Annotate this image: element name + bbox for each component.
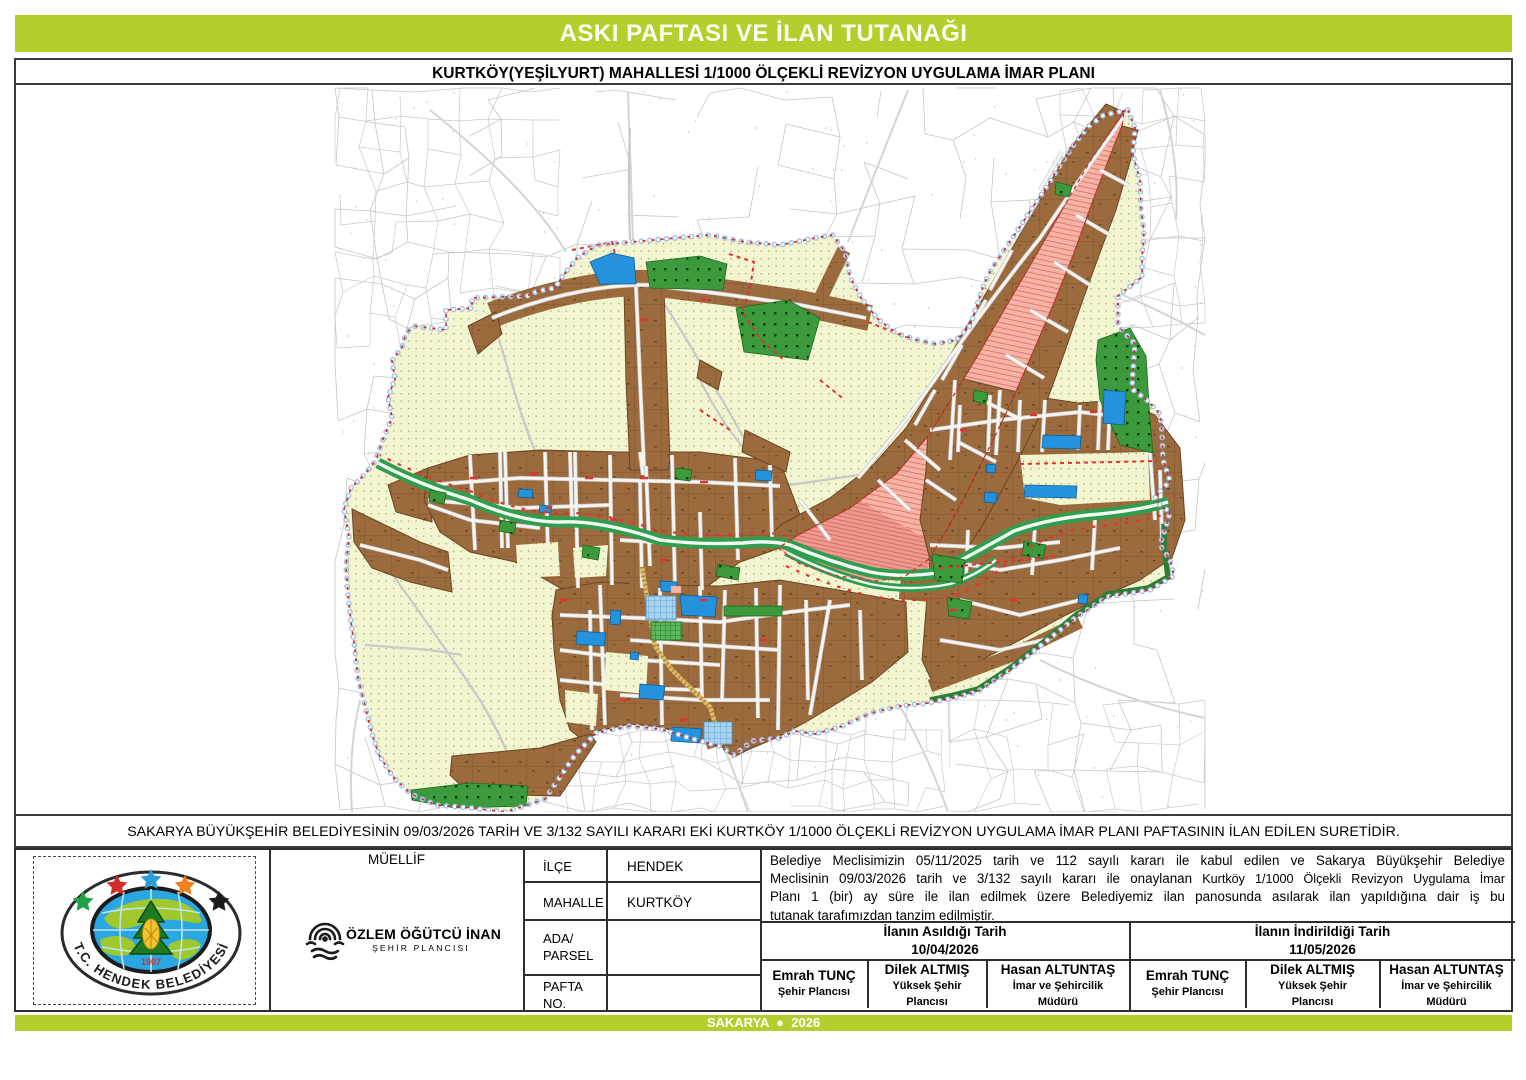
svg-text:1907: 1907 [141,957,161,967]
